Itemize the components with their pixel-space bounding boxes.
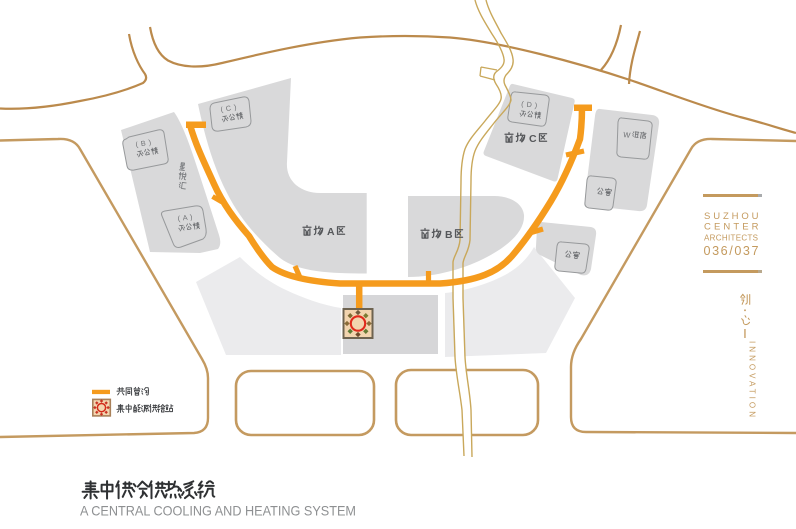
svg-text:A CENTRAL COOLING AND HEATING: A CENTRAL COOLING AND HEATING SYSTEM <box>80 504 356 519</box>
svg-text:B: B <box>445 229 453 241</box>
svg-text:( A ): ( A ) <box>177 212 193 223</box>
svg-text:A: A <box>327 226 335 238</box>
svg-text:ARCHITECTS: ARCHITECTS <box>704 233 758 242</box>
svg-text:C: C <box>529 133 537 145</box>
